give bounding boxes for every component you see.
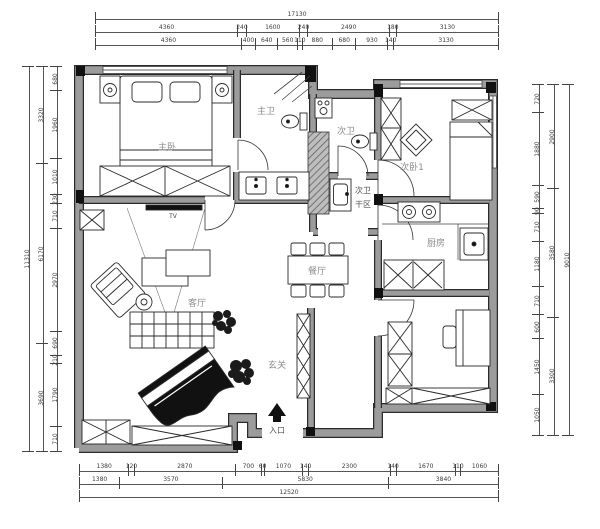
- grand-piano-icon: [138, 346, 235, 435]
- pedestal-sink-icon: [330, 179, 351, 211]
- dim-chain-bottom-row1: 1380120287070060107014023001401670110106…: [79, 464, 499, 476]
- door-second-bath: [338, 146, 368, 176]
- wardrobe-icon: [100, 166, 230, 196]
- dim-chain-top-row2: 4360240160024024901803130: [95, 25, 499, 37]
- window-bedroom2-top: [400, 81, 482, 88]
- window-master-top: [103, 67, 227, 74]
- room-label-foyer: 玄关: [268, 359, 286, 371]
- lounge-diamond-chair-icon: [400, 124, 432, 156]
- tv-label: TV: [168, 213, 178, 220]
- dim-chain-right-inner: 720188059090710118071060014501050: [532, 84, 544, 436]
- dim-chain-top-total: 17130: [95, 12, 499, 24]
- sofa-icon: [130, 312, 214, 348]
- kitchen-sink-icon: [460, 228, 488, 260]
- washing-machine-icon: [315, 98, 332, 118]
- plant-icon: [212, 310, 236, 334]
- door-master-bedroom: [205, 200, 235, 230]
- lounge-chair-icon: [90, 262, 146, 319]
- room-label-living: 客厅: [188, 297, 206, 309]
- tv-icon: [146, 205, 202, 210]
- room-label-master-bedroom: 主卧: [158, 141, 176, 153]
- stove-icon: [398, 202, 440, 222]
- toilet-icon: [352, 133, 378, 150]
- low-cabinet-icon: [132, 426, 232, 445]
- wardrobe-icon: [381, 98, 401, 160]
- floor-plan: 17130 4360240160024024901803130 43604006…: [0, 0, 600, 525]
- room-label-kitchen: 厨房: [427, 237, 445, 249]
- dim-chain-bottom-row2: 1380357058303840: [79, 477, 499, 489]
- base-cabinet-icon: [384, 260, 444, 290]
- plant-icon: [228, 359, 254, 385]
- side-table-icon: [136, 294, 152, 310]
- dim-chain-bottom-total: 12520: [79, 490, 499, 502]
- low-cabinet-icon: [386, 388, 490, 404]
- entrance-arrow-icon: [268, 403, 286, 422]
- coffee-table-icon: [142, 250, 210, 286]
- shoe-cabinet-icon: [297, 314, 310, 398]
- wardrobe-icon: [388, 322, 412, 386]
- vanity-sinks-icon: [239, 172, 309, 200]
- room-label-second-bath: 次卫: [337, 125, 355, 137]
- niche-cabinet-icon: [80, 210, 104, 230]
- dim-chain-left-mid: 332061703690: [36, 66, 48, 452]
- low-cabinet-icon: [82, 420, 130, 444]
- room-label-dry-area-1: 次卫: [355, 185, 371, 195]
- dim-chain-left-inner: 6801960101023071029706902101790710: [50, 66, 62, 452]
- room-label-bedroom2: 次卧1: [400, 161, 424, 173]
- dim-chain-top-row3: 43604006405601108806809301403130: [95, 38, 499, 50]
- dim-chain-right-mid: 290035803300: [547, 84, 559, 436]
- flue-hatch: [308, 132, 329, 214]
- desk-icon: [443, 310, 490, 366]
- room-label-master-bath: 主卫: [257, 105, 275, 117]
- floor-plan-drawing: 主卧 主卫 次卫 次卫 干区 次卧1 厨房 餐厅 客厅 玄关 入口 TV: [0, 0, 600, 525]
- door-master-bath: [238, 140, 268, 170]
- dim-chain-right-total: 9010: [562, 84, 574, 436]
- dim-chain-left-total: 11310: [22, 66, 34, 452]
- nightstand-icon: [100, 76, 120, 103]
- room-label-dining: 餐厅: [308, 265, 326, 277]
- toilet-icon: [282, 113, 308, 130]
- nightstand-icon: [212, 76, 232, 103]
- single-bed-icon: [450, 122, 492, 200]
- overhead-cabinet-icon: [452, 100, 492, 120]
- room-label-entrance: 入口: [269, 426, 285, 435]
- room-label-dry-area-2: 干区: [355, 200, 371, 209]
